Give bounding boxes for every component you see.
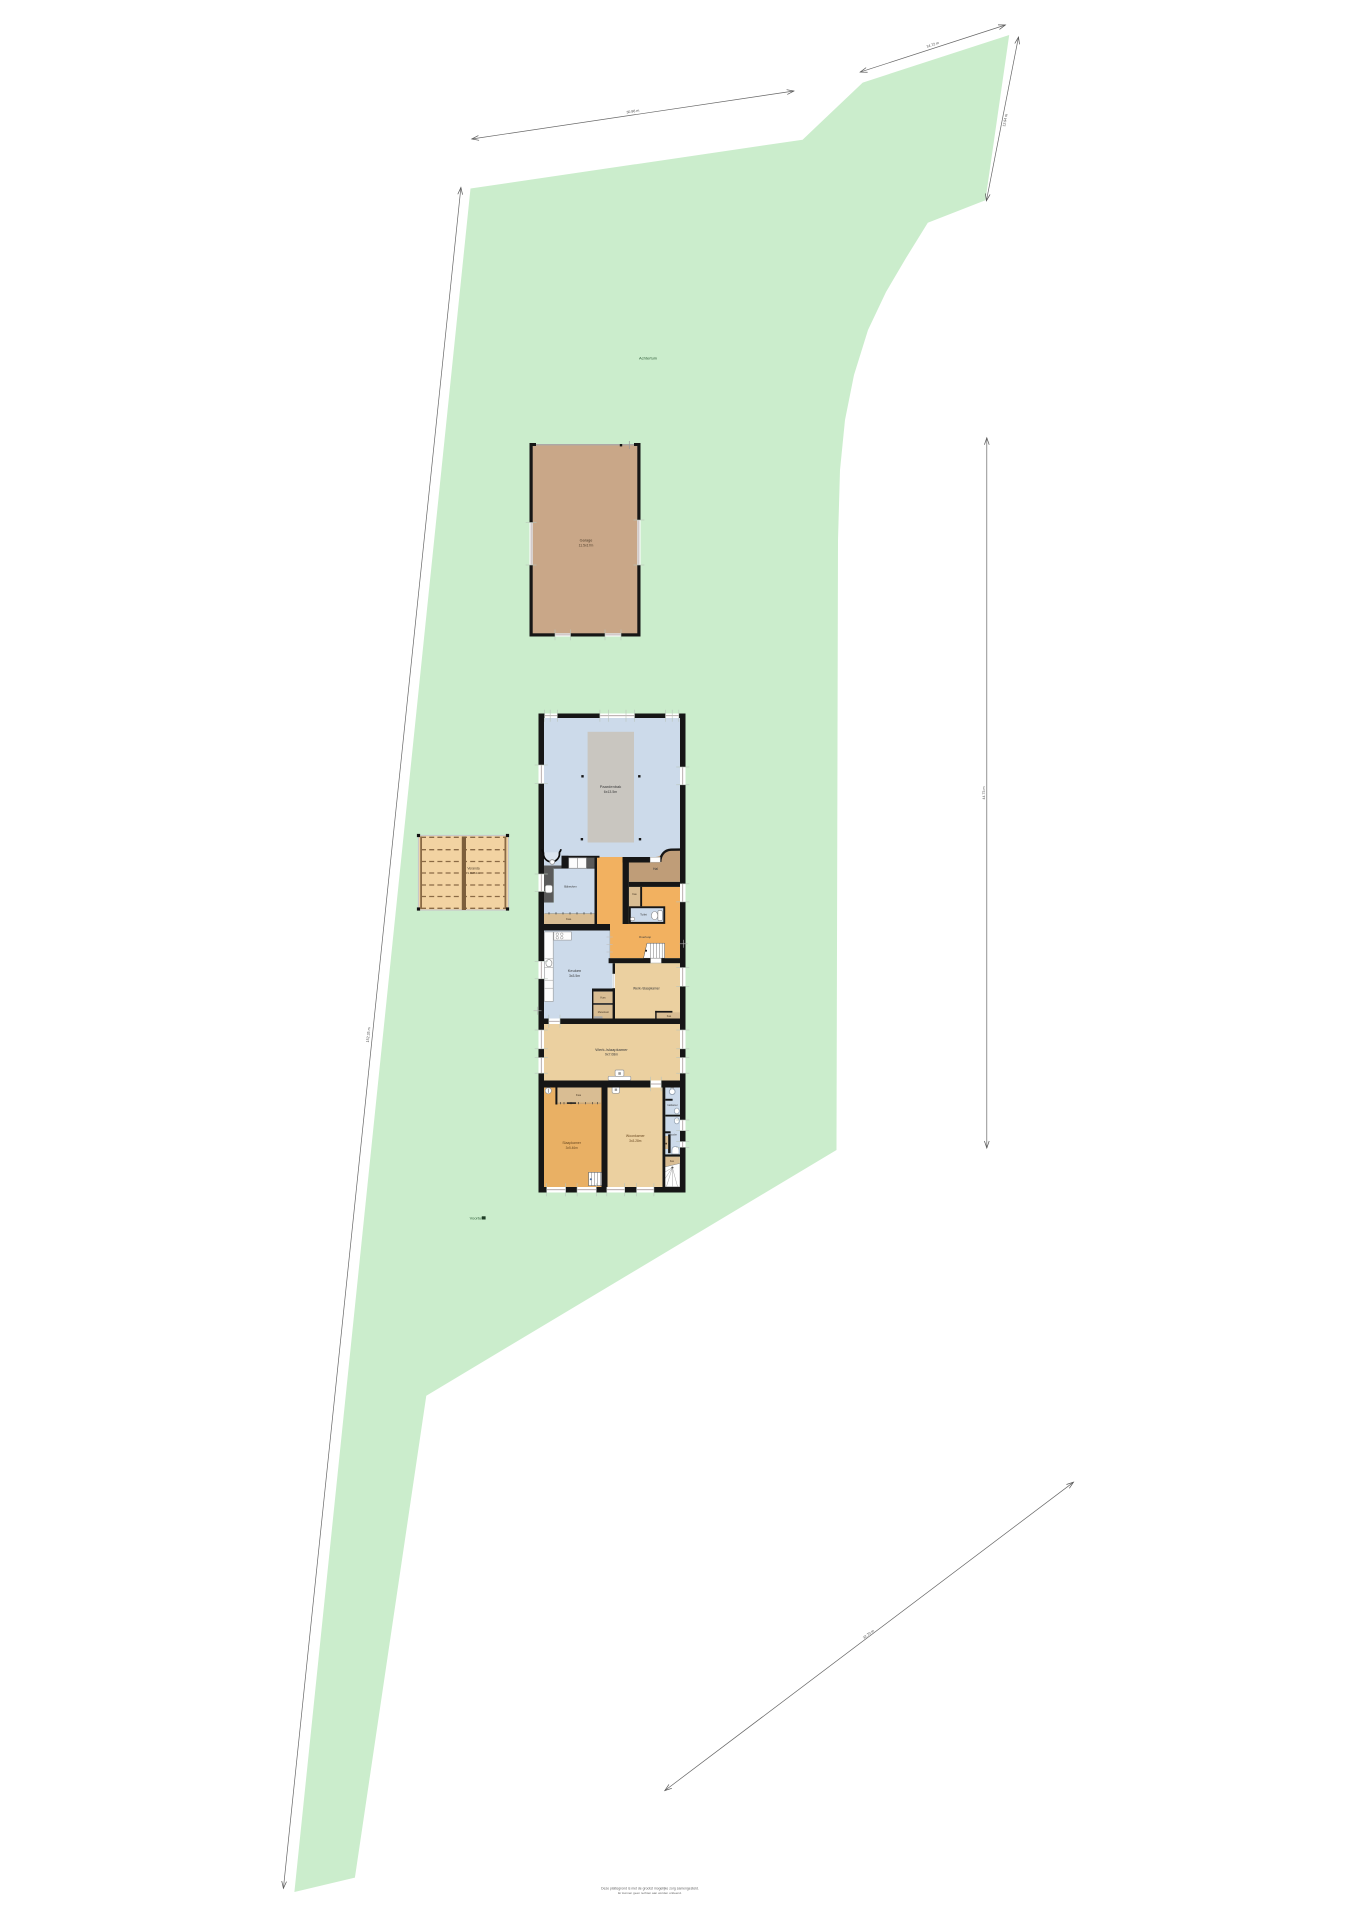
svg-text:Veranda: Veranda bbox=[467, 867, 479, 871]
svg-text:Er kunnen geen rechten aan wor: Er kunnen geen rechten aan worden ontlee… bbox=[618, 1891, 682, 1895]
svg-text:Bijkeuken: Bijkeuken bbox=[564, 885, 577, 889]
svg-text:6x13.5m: 6x13.5m bbox=[604, 790, 618, 794]
svg-text:Werk-/slaapkamer: Werk-/slaapkamer bbox=[595, 1047, 628, 1052]
svg-text:Kas: Kas bbox=[667, 1014, 672, 1018]
svg-text:11.5x17m: 11.5x17m bbox=[579, 544, 594, 548]
svg-text:Deze plattegrond is met de gro: Deze plattegrond is met de grootst mogel… bbox=[601, 1887, 699, 1891]
svg-text:Werk-/slaapkamer: Werk-/slaapkamer bbox=[633, 987, 661, 991]
svg-text:Kas: Kas bbox=[632, 892, 637, 896]
svg-text:Meterkast: Meterkast bbox=[598, 1011, 609, 1014]
svg-text:9.3x7.2m: 9.3x7.2m bbox=[467, 871, 480, 875]
svg-text:Paardenbak: Paardenbak bbox=[600, 784, 622, 789]
svg-text:Woonkamer: Woonkamer bbox=[626, 1134, 646, 1138]
svg-text:badkamer: badkamer bbox=[667, 1104, 677, 1107]
svg-text:douche: douche bbox=[669, 1134, 677, 1136]
svg-text:Kas: Kas bbox=[576, 1093, 582, 1097]
svg-text:Keuken: Keuken bbox=[568, 968, 582, 973]
svg-text:9x7.08m: 9x7.08m bbox=[605, 1053, 618, 1057]
svg-text:3x3.28m: 3x3.28m bbox=[629, 1139, 642, 1143]
svg-text:Kas: Kas bbox=[600, 995, 606, 999]
svg-text:Slaapkamer: Slaapkamer bbox=[562, 1141, 582, 1145]
svg-text:Hal: Hal bbox=[653, 867, 658, 871]
svg-text:Achtertuin: Achtertuin bbox=[639, 356, 657, 361]
svg-text:Garage: Garage bbox=[580, 539, 593, 543]
svg-text:Kas.: Kas. bbox=[566, 917, 572, 921]
svg-text:3x5.46m: 3x5.46m bbox=[566, 1146, 579, 1150]
svg-text:Toilet: Toilet bbox=[640, 912, 647, 916]
svg-text:3x3.5m: 3x3.5m bbox=[569, 974, 580, 978]
svg-text:44.73 m: 44.73 m bbox=[982, 787, 986, 800]
svg-text:Overloop: Overloop bbox=[639, 935, 652, 939]
